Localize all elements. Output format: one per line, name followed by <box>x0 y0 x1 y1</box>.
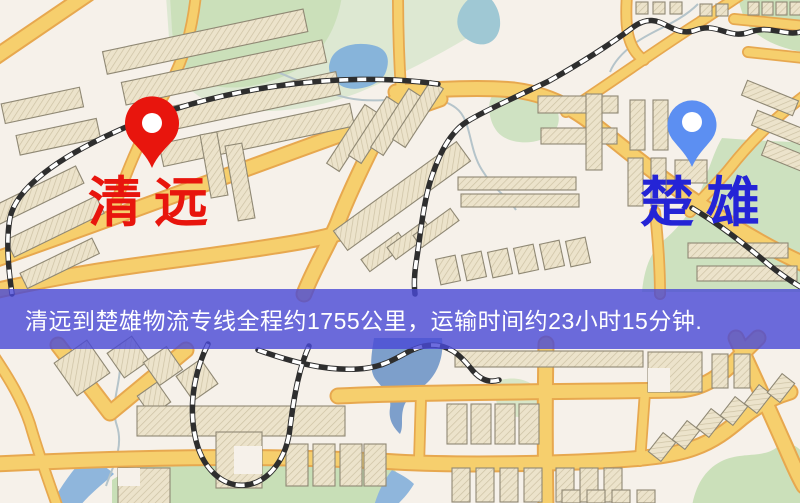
destination-label: 楚雄 <box>640 176 772 230</box>
route-info-text: 清远到楚雄物流专线全程约1755公里，运输时间约23小时15分钟. <box>0 302 702 336</box>
route-info-banner: 清远到楚雄物流专线全程约1755公里，运输时间约23小时15分钟. <box>0 289 800 349</box>
origin-label: 清远 <box>88 176 220 230</box>
map-canvas <box>0 0 800 503</box>
logistics-route-map: 清远 楚雄 清远到楚雄物流专线全程约1755公里，运输时间约23小时15分钟. <box>0 0 800 503</box>
